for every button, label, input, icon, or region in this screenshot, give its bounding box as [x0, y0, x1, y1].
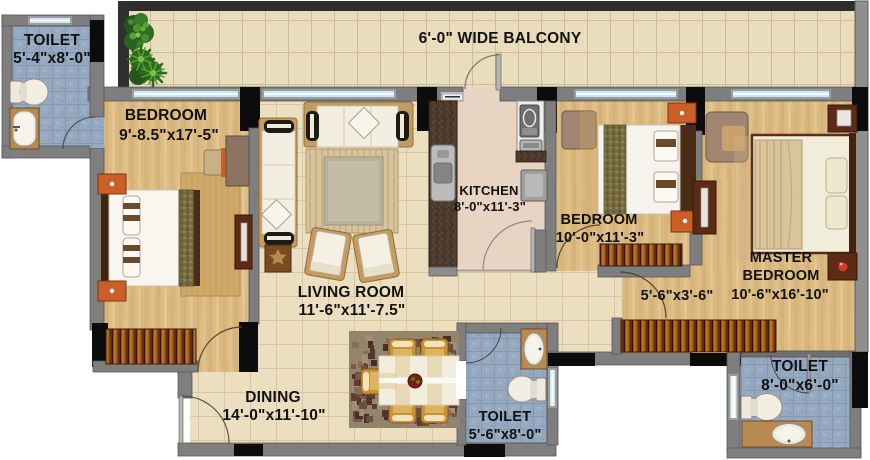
svg-text:TOILET: TOILET — [479, 409, 532, 425]
svg-text:6'-0" WIDE BALCONY: 6'-0" WIDE BALCONY — [419, 30, 582, 47]
svg-text:11'-6"x11'-7.5": 11'-6"x11'-7.5" — [299, 302, 406, 319]
svg-text:5'-6"x8'-0": 5'-6"x8'-0" — [469, 427, 542, 443]
svg-text:14'-0"x11'-10": 14'-0"x11'-10" — [222, 407, 325, 424]
svg-text:5'-6"x3'-6": 5'-6"x3'-6" — [641, 288, 714, 304]
svg-text:KITCHEN: KITCHEN — [459, 183, 518, 198]
svg-text:8'-0"x6'-0": 8'-0"x6'-0" — [761, 377, 839, 394]
svg-text:MASTER: MASTER — [750, 250, 813, 266]
svg-text:10'-6"x16'-10": 10'-6"x16'-10" — [731, 287, 829, 303]
svg-text:BEDROOM: BEDROOM — [742, 268, 819, 284]
svg-text:DINING: DINING — [245, 389, 300, 406]
svg-text:BEDROOM: BEDROOM — [125, 107, 207, 124]
svg-text:10'-0"x11'-3": 10'-0"x11'-3" — [556, 230, 645, 246]
svg-text:9'-8.5"x17'-5": 9'-8.5"x17'-5" — [119, 127, 219, 144]
svg-text:TOILET: TOILET — [772, 358, 828, 375]
svg-text:BEDROOM: BEDROOM — [560, 212, 637, 228]
svg-text:5'-4"x8'-0": 5'-4"x8'-0" — [13, 50, 91, 67]
svg-text:8'-0"x11'-3": 8'-0"x11'-3" — [454, 199, 526, 214]
svg-text:TOILET: TOILET — [24, 32, 80, 49]
svg-text:LIVING ROOM: LIVING ROOM — [298, 284, 404, 301]
